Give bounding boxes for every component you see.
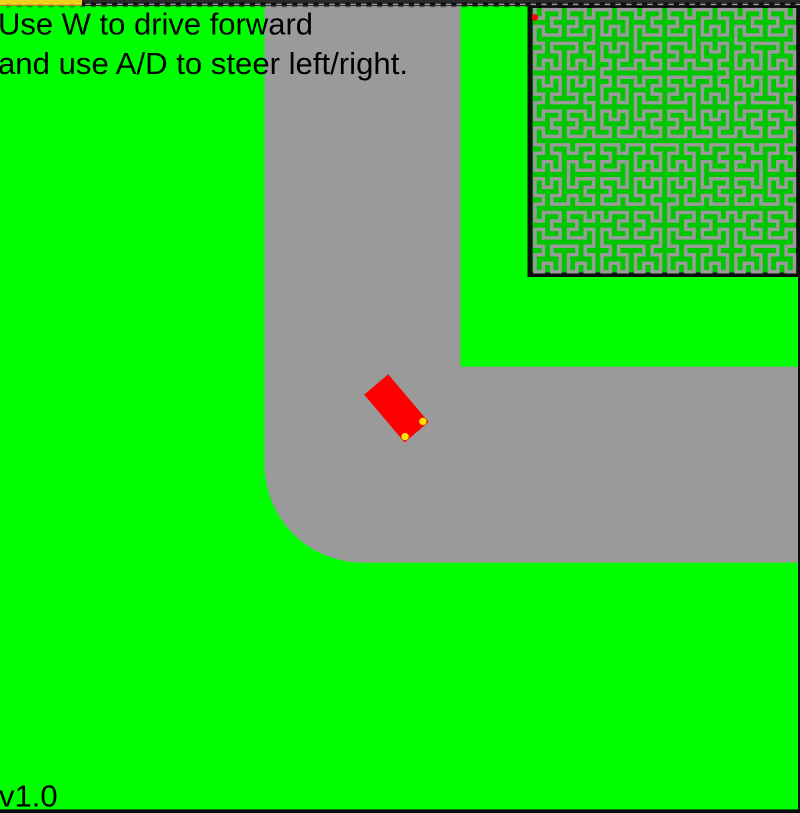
svg-text:Use W to drive forward: Use W to drive forward	[0, 7, 313, 42]
svg-text:and use A/D to steer left/righ: and use A/D to steer left/right.	[0, 46, 408, 81]
svg-text:v1.0: v1.0	[0, 778, 58, 813]
